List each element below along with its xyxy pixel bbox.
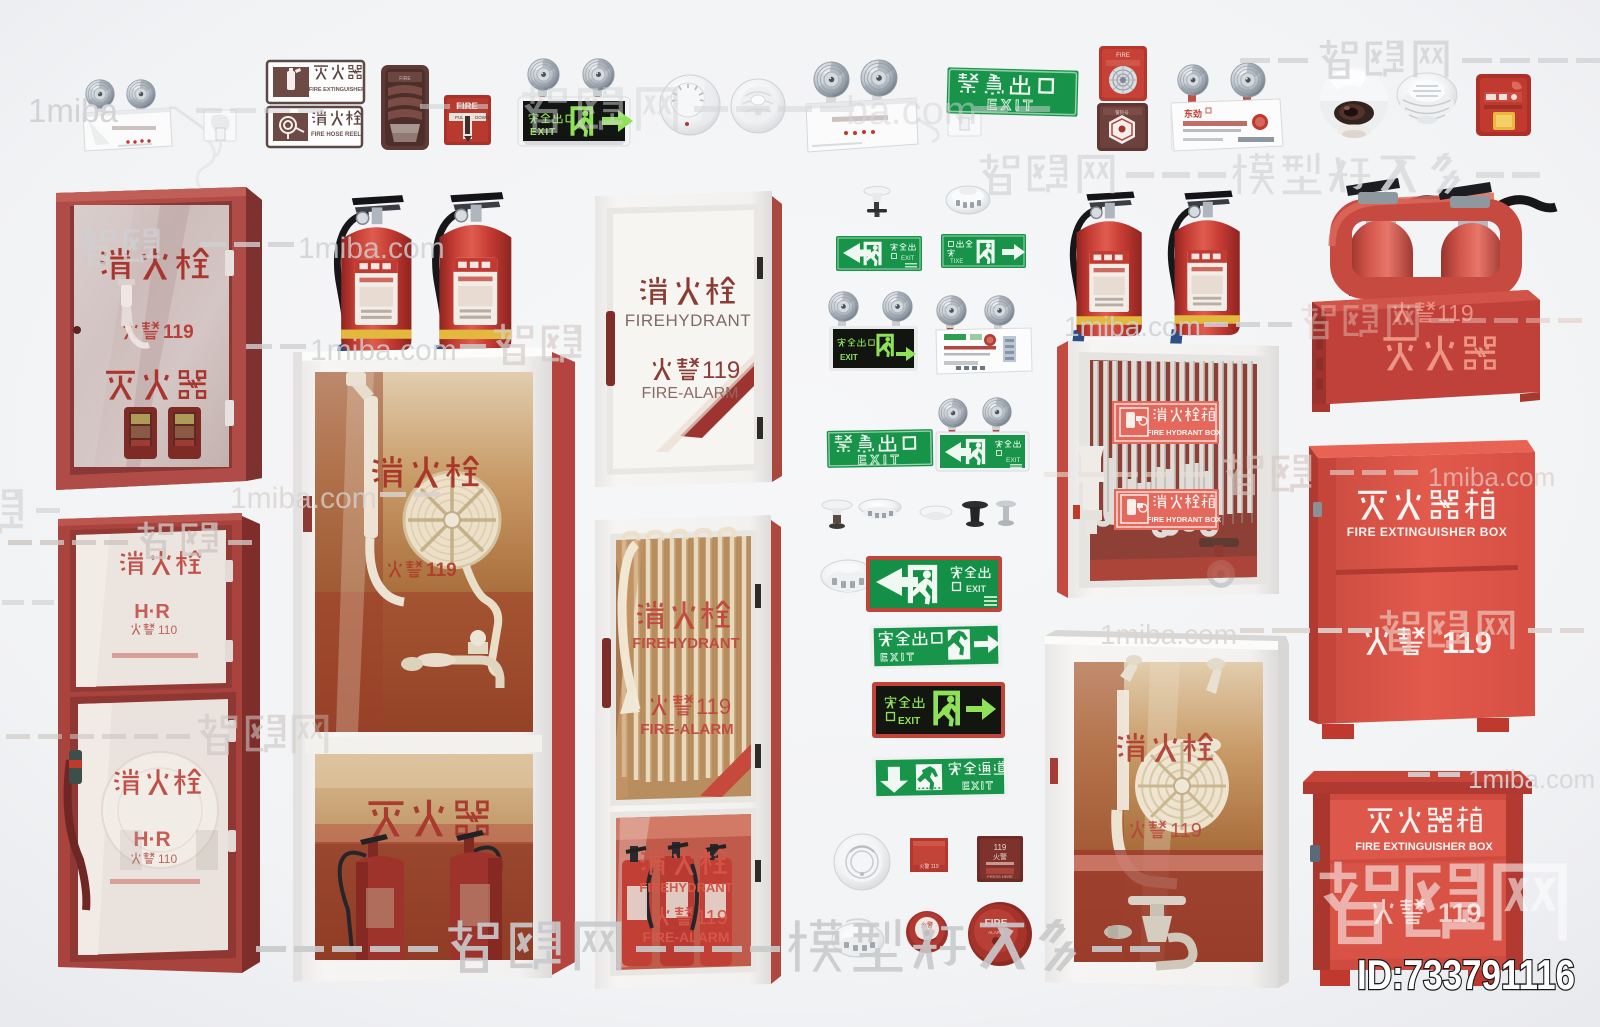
svg-text:FIRE: FIRE (1116, 53, 1130, 59)
svg-text:EXIT: EXIT (858, 452, 903, 468)
svg-text:1miba.com: 1miba.com (1428, 462, 1555, 492)
svg-text:FIRE-ALARM: FIRE-ALARM (642, 385, 739, 402)
svg-text:EXIT: EXIT (840, 353, 858, 362)
svg-text:警铃号: 警铃号 (1115, 109, 1129, 116)
svg-text:FIRE-ALARM: FIRE-ALARM (640, 721, 733, 738)
svg-text:1miba: 1miba (28, 92, 119, 129)
svg-text:119: 119 (163, 322, 194, 343)
svg-text:火警 119: 火警 119 (919, 863, 939, 870)
svg-text:火警: 火警 (993, 852, 1007, 861)
svg-text:119: 119 (702, 357, 740, 384)
svg-text:FIREHYDRANT: FIREHYDRANT (632, 635, 740, 652)
svg-text:TIXE: TIXE (950, 259, 963, 265)
svg-text:1miba.com: 1miba.com (298, 232, 445, 265)
svg-text:FIREHYDRANT: FIREHYDRANT (625, 311, 751, 330)
svg-text:FIRE HYDRANT BOX: FIRE HYDRANT BOX (1147, 428, 1221, 437)
svg-text:EXIT: EXIT (898, 716, 920, 727)
svg-text:1miba.com: 1miba.com (1064, 311, 1201, 342)
svg-text:110: 110 (158, 852, 177, 866)
svg-text:1miba.com: 1miba.com (1100, 619, 1237, 650)
svg-text:1miba.com: 1miba.com (230, 482, 377, 515)
svg-text:FIRE-ALARM: FIRE-ALARM (642, 929, 729, 945)
svg-text:FIRE EXTINGUISHER: FIRE EXTINGUISHER (309, 87, 365, 93)
svg-text:东劲: 东劲 (1184, 108, 1202, 119)
svg-text:1miba.com: 1miba.com (1468, 764, 1595, 794)
svg-text:H·R: H·R (134, 601, 170, 623)
svg-text:FIRE EXTINGUISHER BOX: FIRE EXTINGUISHER BOX (1347, 525, 1508, 539)
svg-text:110: 110 (158, 623, 177, 637)
svg-text:119: 119 (696, 694, 731, 719)
svg-text:1miba.com: 1miba.com (310, 334, 457, 367)
svg-text:119: 119 (994, 843, 1007, 852)
svg-text:EXIT: EXIT (966, 584, 987, 594)
svg-text:119: 119 (426, 560, 457, 581)
svg-text:PRESS HERE: PRESS HERE (987, 874, 1013, 879)
svg-text:DOWN: DOWN (475, 115, 489, 120)
svg-text:FIRE HYDRANT BOX: FIRE HYDRANT BOX (1147, 515, 1221, 524)
svg-text:EXIT: EXIT (880, 651, 917, 664)
svg-text:FIRE: FIRE (399, 76, 411, 82)
svg-text:EXIT: EXIT (901, 256, 915, 262)
svg-text:ID:733791116: ID:733791116 (1357, 951, 1575, 998)
svg-text:FIRE EXTINGUISHER BOX: FIRE EXTINGUISHER BOX (1355, 841, 1493, 853)
svg-text:EXIT: EXIT (962, 780, 995, 793)
svg-text:119: 119 (1170, 820, 1202, 842)
svg-text:EXIT: EXIT (1006, 457, 1020, 464)
svg-text:FIREHYDRANT: FIREHYDRANT (639, 880, 732, 895)
svg-text:ba.com: ba.com (846, 89, 977, 133)
svg-text:FIRE HOSE REEL: FIRE HOSE REEL (311, 132, 361, 138)
svg-text:119: 119 (696, 907, 728, 929)
